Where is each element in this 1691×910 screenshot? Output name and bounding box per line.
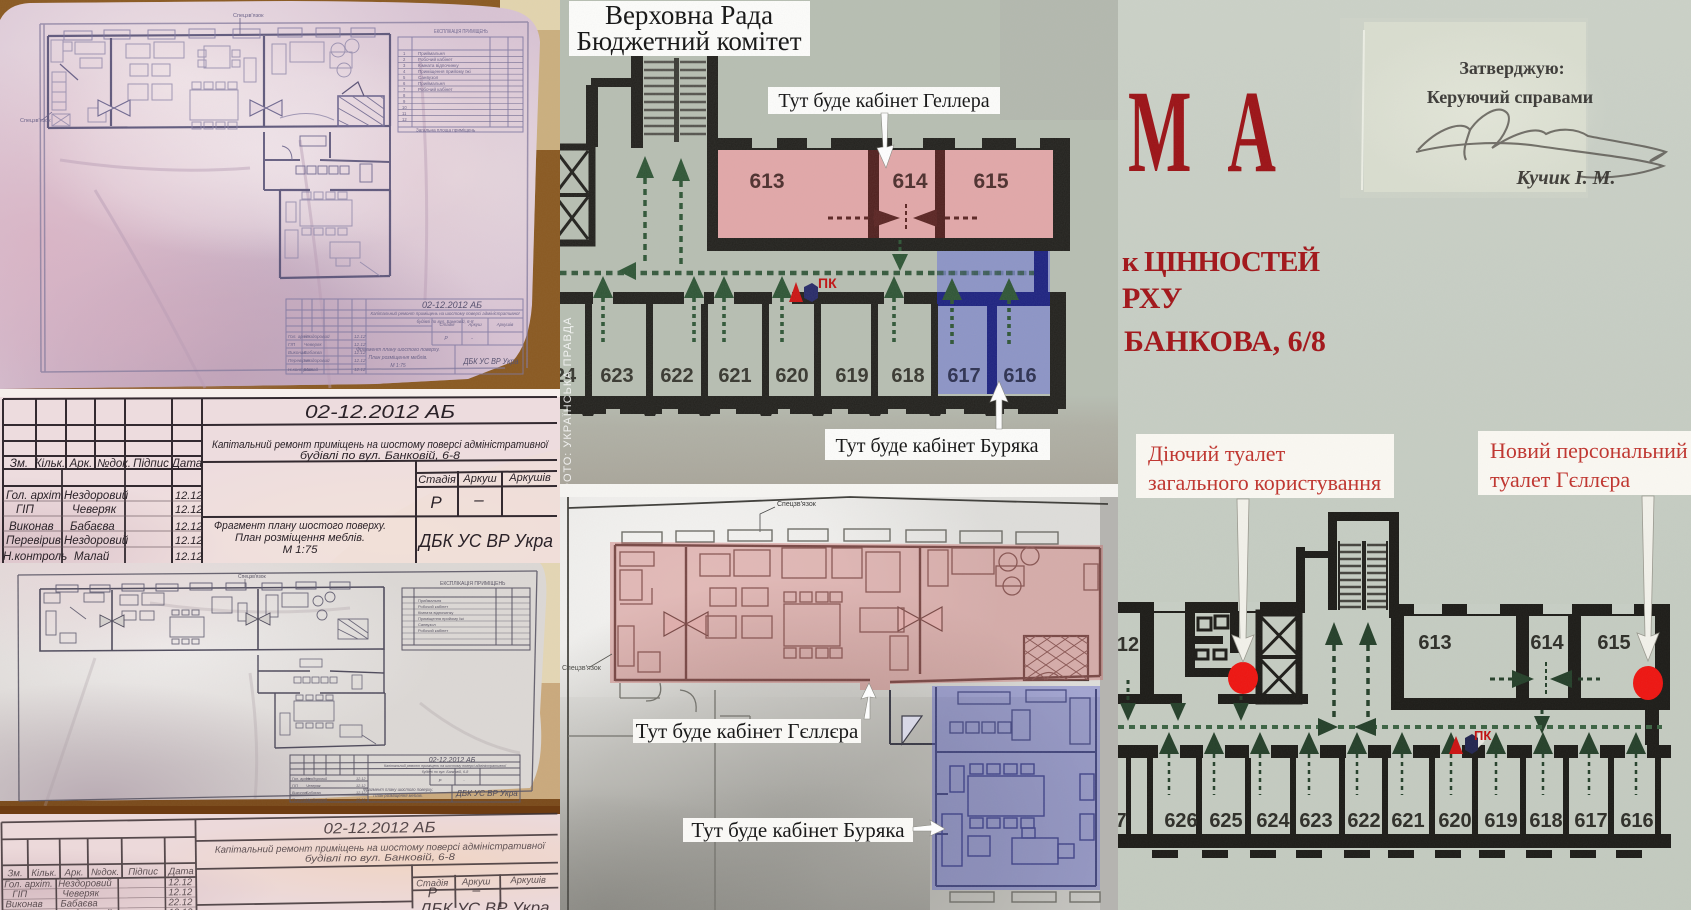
svg-text:12.12: 12.12 bbox=[175, 490, 203, 502]
svg-text:будівлі по вул. Банковій, 6-8: будівлі по вул. Банковій, 6-8 bbox=[300, 450, 461, 462]
svg-text:Кільк.: Кільк. bbox=[35, 458, 66, 470]
svg-text:–: – bbox=[471, 882, 480, 898]
svg-text:02-12.2012 АБ: 02-12.2012 АБ bbox=[323, 819, 435, 837]
svg-text:Підпис: Підпис bbox=[133, 458, 169, 470]
svg-text:Н.контроль: Н.контроль bbox=[3, 551, 67, 563]
svg-text:Р: Р bbox=[430, 493, 442, 512]
svg-text:Нездоровий: Нездоровий bbox=[64, 490, 129, 502]
svg-text:Фрагмент плану шостого поверху: Фрагмент плану шостого поверху. bbox=[214, 520, 386, 532]
svg-text:Перевірив: Перевірив bbox=[6, 535, 61, 547]
svg-text:12.12: 12.12 bbox=[175, 504, 203, 516]
svg-text:Р: Р bbox=[428, 884, 438, 900]
svg-text:План розміщення меблів.: План розміщення меблів. bbox=[235, 532, 365, 544]
svg-text:Дата: Дата bbox=[170, 458, 202, 470]
svg-text:Нездоровий: Нездоровий bbox=[64, 535, 129, 547]
svg-text:Бабаєва: Бабаєва bbox=[70, 521, 115, 533]
svg-text:12.12: 12.12 bbox=[175, 521, 203, 533]
svg-text:ГІП: ГІП bbox=[16, 504, 34, 516]
svg-text:Чеверяк: Чеверяк bbox=[72, 504, 117, 516]
svg-text:Кільк.: Кільк. bbox=[31, 868, 57, 879]
svg-text:12.12: 12.12 bbox=[175, 551, 203, 563]
svg-text:Аркуш: Аркуш bbox=[462, 473, 496, 485]
svg-text:будівлі по вул. Банковій, 6-8: будівлі по вул. Банковій, 6-8 bbox=[305, 852, 456, 865]
svg-text:№док.: №док. bbox=[97, 458, 131, 470]
svg-text:Дата: Дата bbox=[167, 866, 193, 877]
svg-text:ДБК УС ВР Укра: ДБК УС ВР Укра bbox=[417, 900, 549, 910]
svg-text:Підпис: Підпис bbox=[128, 866, 158, 877]
svg-text:Зм.: Зм. bbox=[7, 868, 22, 879]
svg-text:ДБК УС ВР Укра: ДБК УС ВР Укра bbox=[417, 531, 553, 551]
svg-text:02-12.2012 АБ: 02-12.2012 АБ bbox=[305, 402, 455, 422]
svg-text:М 1:75: М 1:75 bbox=[283, 544, 318, 556]
svg-text:Стадія: Стадія bbox=[418, 474, 456, 486]
svg-text:Арк.: Арк. bbox=[69, 458, 93, 470]
svg-text:Аркушів: Аркушів bbox=[509, 874, 546, 885]
svg-text:Виконав: Виконав bbox=[9, 521, 54, 533]
svg-text:Аркушів: Аркушів bbox=[508, 472, 551, 484]
svg-text:Гол. архіт.: Гол. архіт. bbox=[6, 490, 64, 502]
svg-text:Арк.: Арк. bbox=[64, 867, 84, 878]
svg-text:Малай: Малай bbox=[74, 551, 110, 563]
svg-text:12.12: 12.12 bbox=[175, 535, 203, 547]
svg-text:Зм.: Зм. bbox=[10, 458, 28, 470]
svg-text:№док.: №док. bbox=[91, 867, 119, 878]
svg-text:–: – bbox=[473, 490, 484, 509]
